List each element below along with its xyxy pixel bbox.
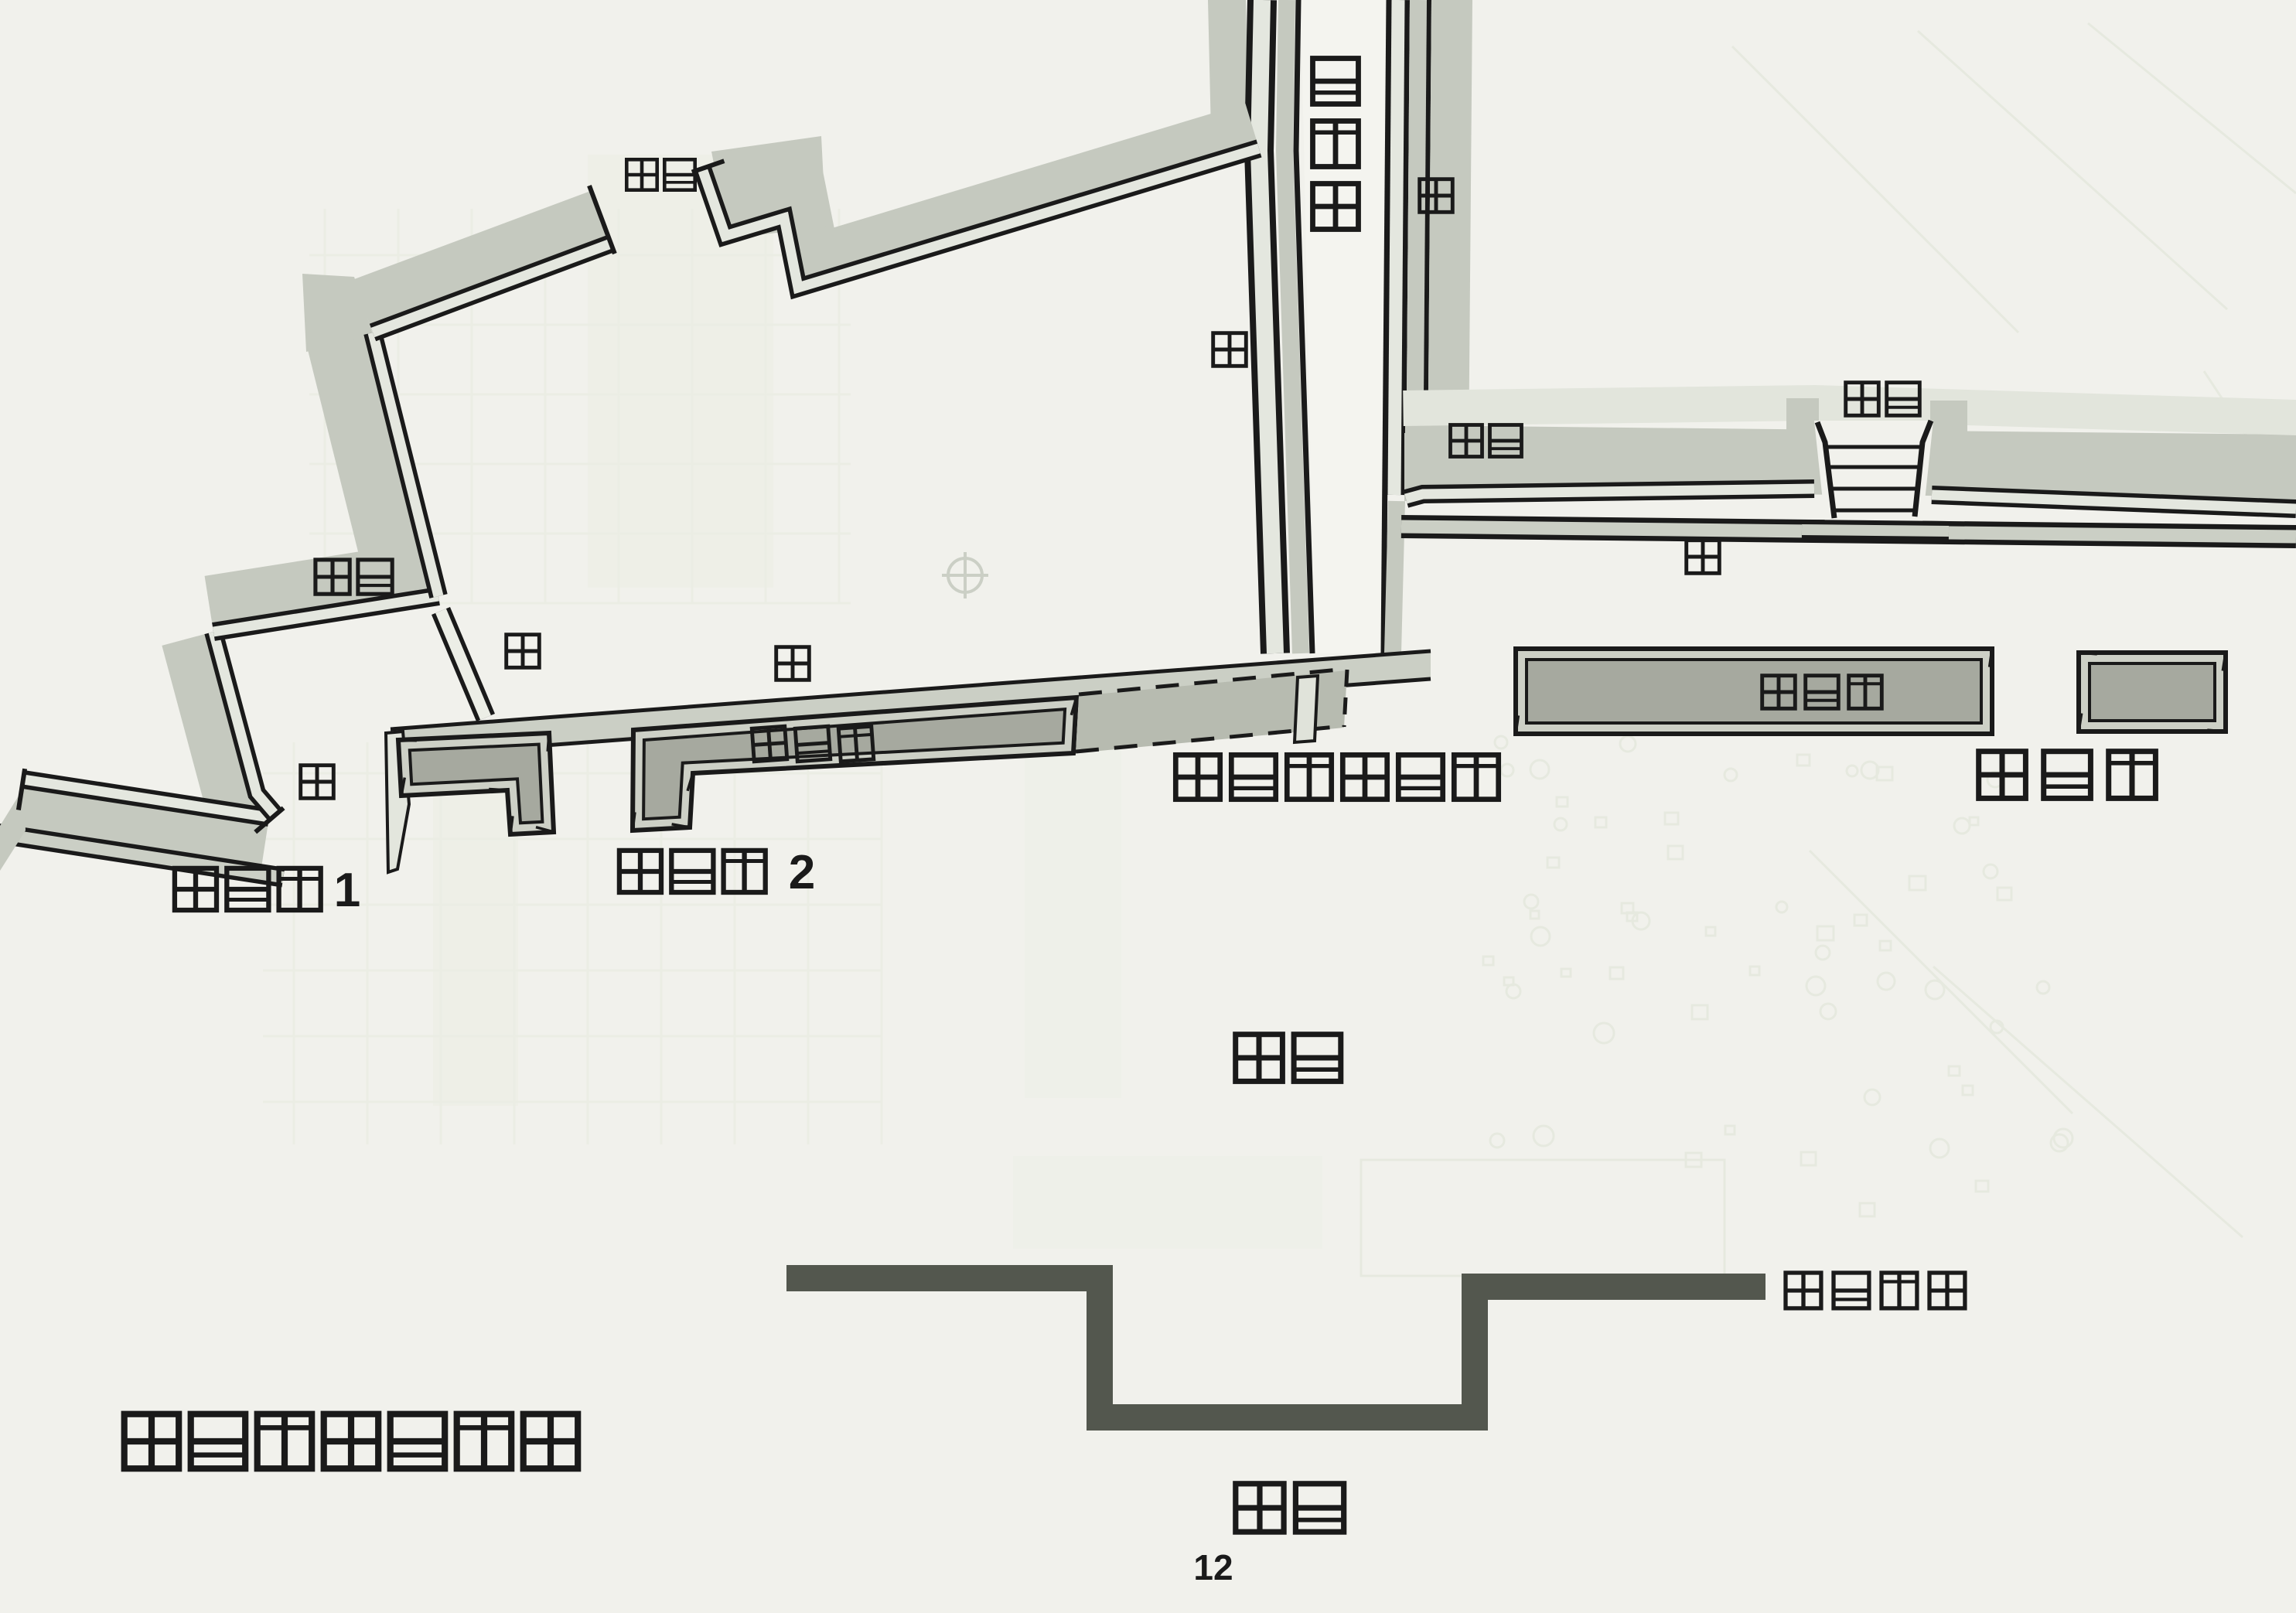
svg-text:2: 2: [789, 846, 815, 899]
svg-text:1: 1: [334, 864, 360, 917]
svg-text:12: 12: [1193, 1547, 1233, 1587]
